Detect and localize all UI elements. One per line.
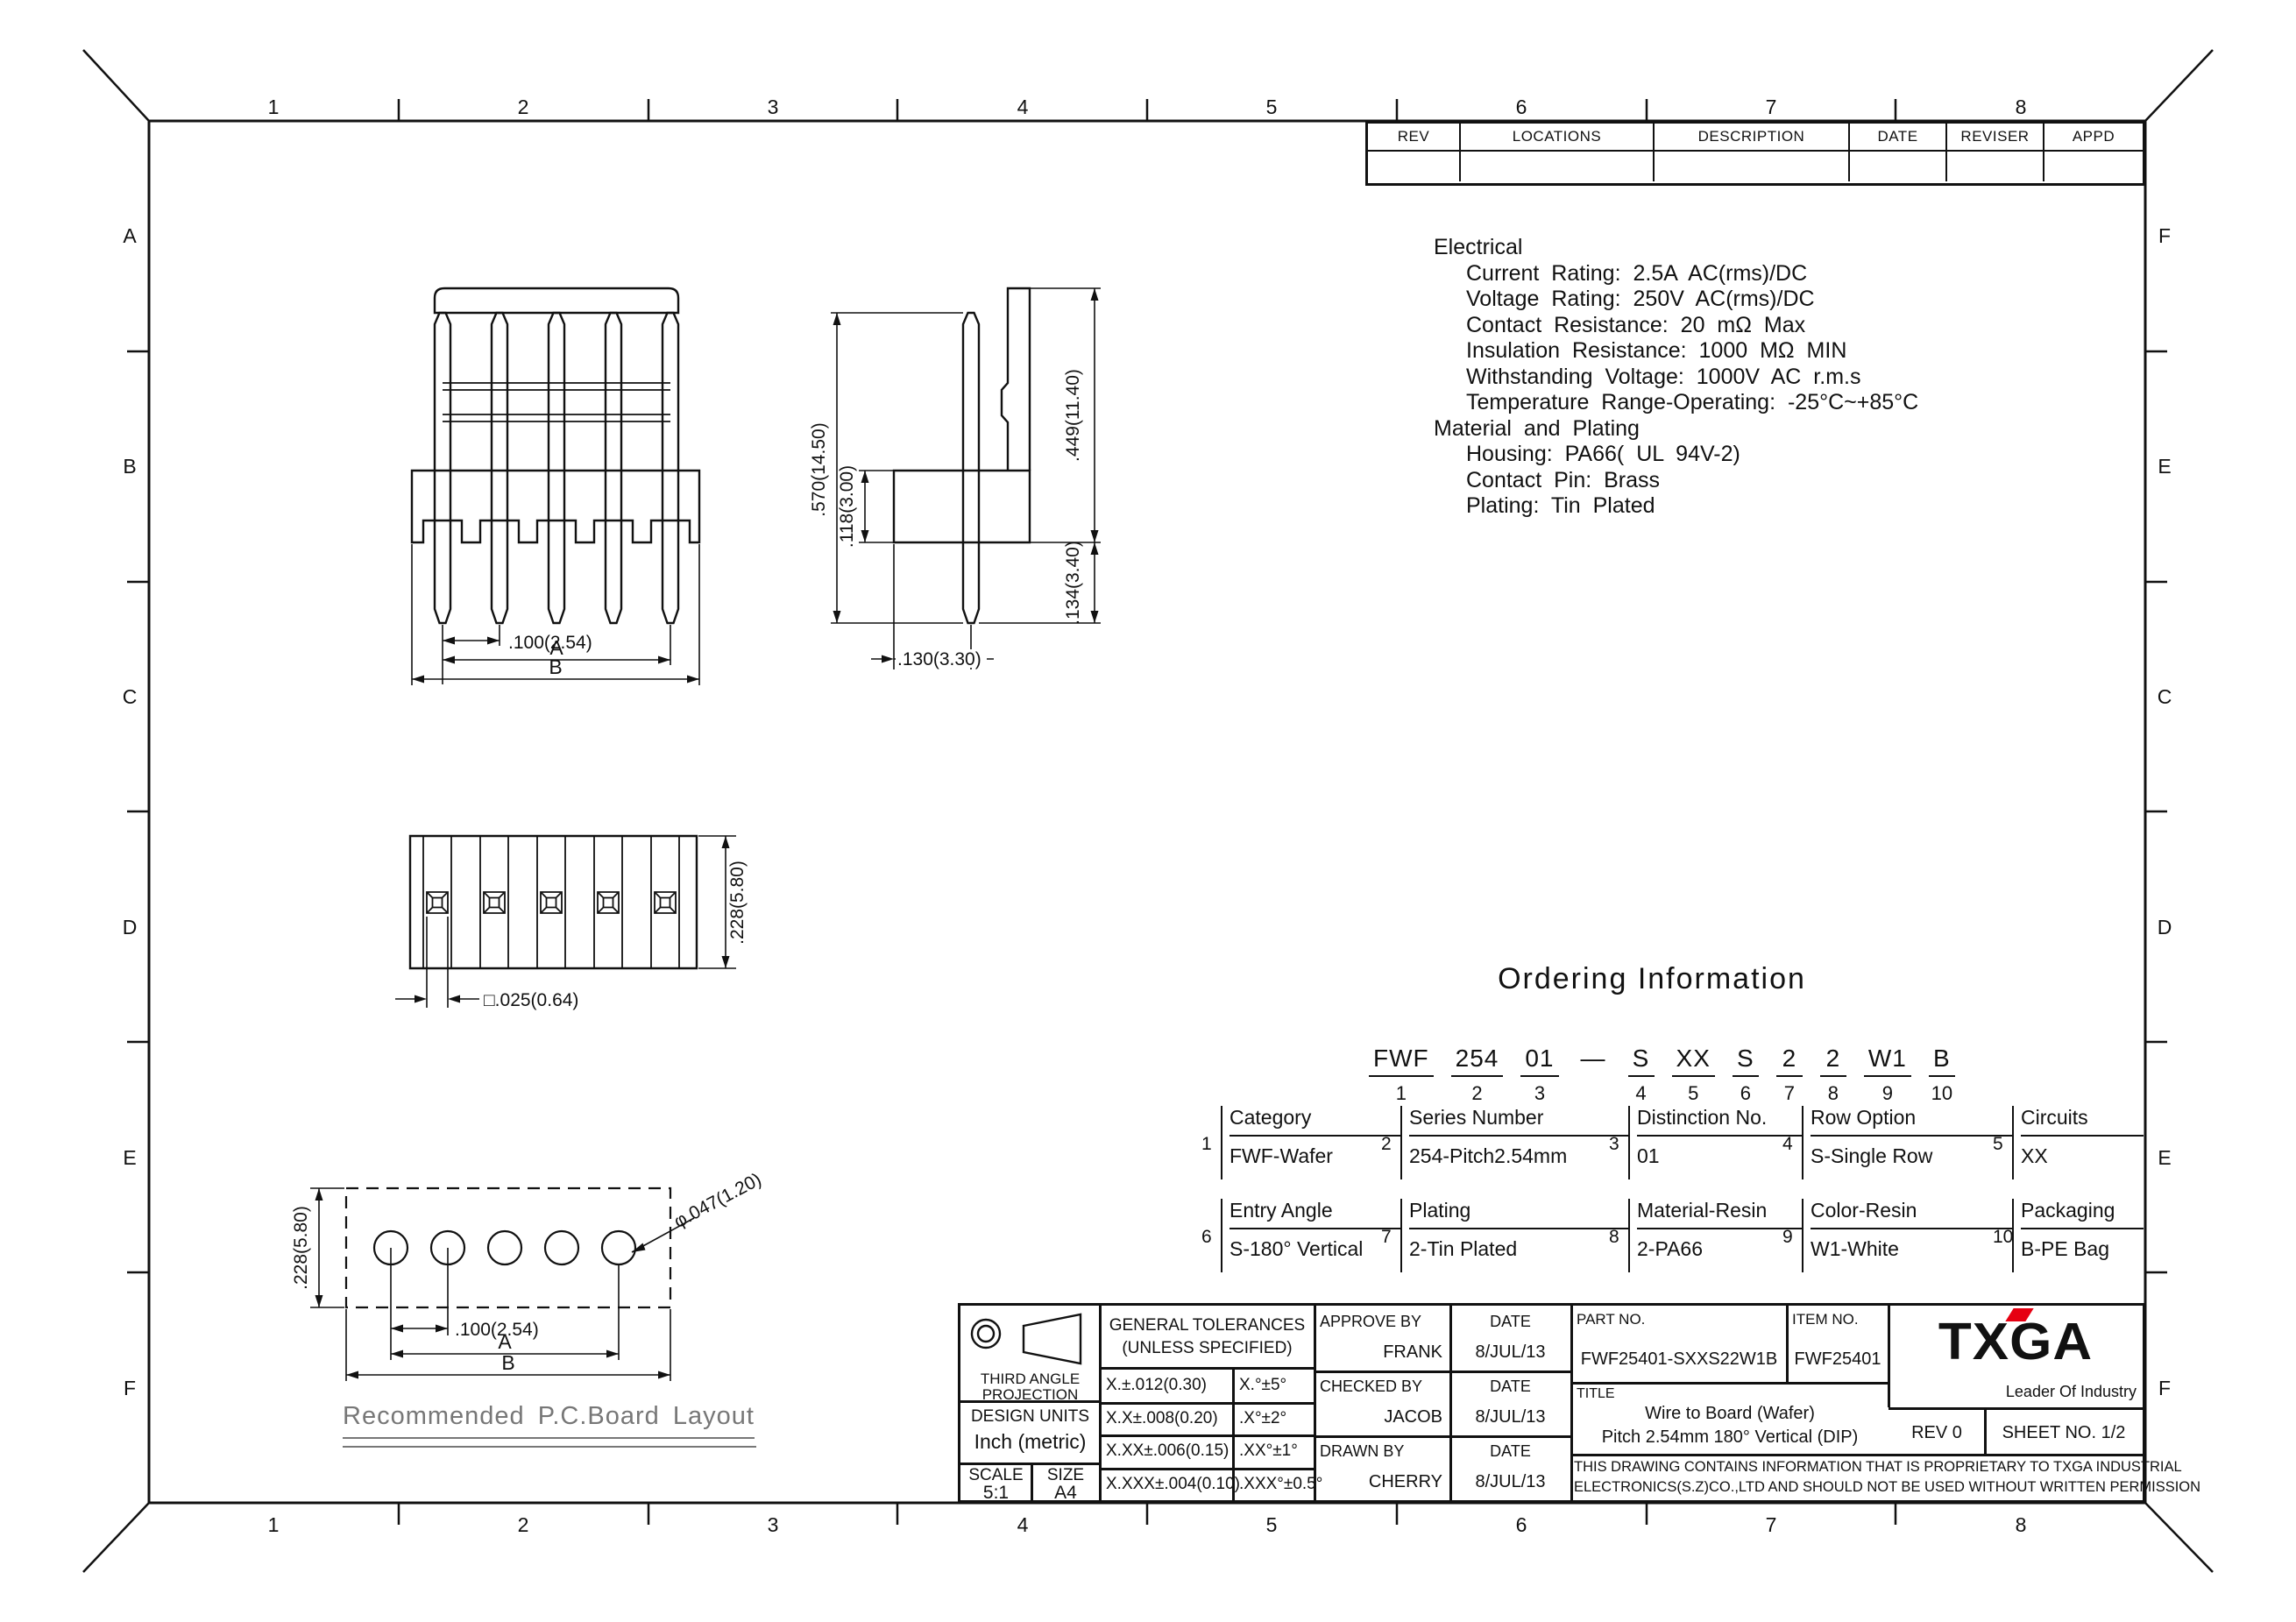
segment-code: 01	[1520, 1045, 1558, 1077]
zone-col-label: 3	[768, 96, 779, 118]
dim-label-lower: .134(3.40)	[1063, 541, 1083, 625]
part-number-segment: —	[1577, 1045, 1611, 1105]
approve-by-name: FRANK	[1337, 1342, 1442, 1363]
segment-code: W1	[1864, 1045, 1911, 1077]
zone-row-label: C	[123, 685, 138, 708]
segment-code: —	[1577, 1045, 1611, 1077]
spec-section-title: Material and Plating	[1434, 416, 2100, 443]
approve-by-label: APPROVE BY	[1320, 1313, 1421, 1331]
checked-by-name: JACOB	[1337, 1407, 1442, 1427]
ordering-field-material: 8 Material-Resin 2-PA66	[1628, 1199, 1802, 1272]
ordering-field-distinction: 3 Distinction No. 01	[1628, 1106, 1802, 1179]
field-value: W1-White	[1811, 1229, 2012, 1261]
spec-line: Plating: Tin Plated	[1434, 493, 2100, 520]
item-no-label: ITEM NO.	[1792, 1311, 1859, 1328]
proprietary-note: ELECTRONICS(S.Z)CO.,LTD AND SHOULD NOT B…	[1574, 1479, 2143, 1496]
zone-row-label: D	[2158, 916, 2172, 938]
zone-col-label: 8	[2016, 96, 2027, 118]
zone-col-label: 8	[2016, 1513, 2027, 1536]
field-value: 2-PA66	[1637, 1229, 1802, 1261]
zone-col-label: 5	[1266, 1513, 1278, 1536]
tolerance-angle: .XXX°±0.5°	[1239, 1475, 1322, 1494]
revision-col-header: DATE	[1850, 124, 1947, 152]
spec-text-block: Electrical Current Rating: 2.5A AC(rms)/…	[1434, 235, 2100, 520]
extension-lines	[831, 288, 1101, 669]
ordering-field-color: 9 Color-Resin W1-White	[1802, 1199, 2012, 1272]
ordering-field-entry-angle: 6 Entry Angle S-180° Vertical	[1221, 1199, 1400, 1272]
segment-code: FWF	[1369, 1045, 1434, 1077]
zone-col-label: 6	[1516, 96, 1527, 118]
dimension-arrows	[415, 836, 730, 1003]
tolerances-title: (UNLESS SPECIFIED)	[1100, 1339, 1315, 1358]
revision-col-header: REVISER	[1947, 124, 2044, 152]
segment-code: B	[1929, 1045, 1955, 1077]
sheet-no-value: SHEET NO. 1/2	[1985, 1423, 2143, 1443]
connector-cap	[435, 288, 678, 313]
segment-code: XX	[1672, 1045, 1715, 1077]
dimension-lines	[837, 288, 1095, 659]
field-number: 4	[1782, 1134, 1793, 1155]
revision-cell-empty	[1655, 152, 1850, 181]
segment-code: 2	[1776, 1045, 1803, 1077]
drawing-sheet: { "border": { "cols": ["1","2","3","4","…	[0, 0, 2296, 1622]
segment-code: 2	[1820, 1045, 1846, 1077]
front-view: .100(2.54) A B	[412, 288, 699, 685]
zone-col-label: 2	[518, 96, 529, 118]
rev-value: REV 0	[1889, 1423, 1985, 1443]
dim-label-offset: .130(3.30)	[897, 649, 981, 669]
spec-line: Withstanding Voltage: 1000V AC r.m.s	[1434, 365, 2100, 391]
part-number-segment: 2542	[1451, 1045, 1504, 1105]
date-label: DATE	[1450, 1313, 1570, 1331]
dim-label-height: .570(14.50)	[809, 422, 829, 516]
spec-line: Housing: PA66( UL 94V-2)	[1434, 442, 2100, 468]
segment-number: 4	[1635, 1082, 1646, 1105]
item-no-value: FWF25401	[1787, 1349, 1889, 1370]
projection-label: PROJECTION	[960, 1386, 1100, 1404]
tolerance-angle: .X°±2°	[1239, 1409, 1286, 1428]
field-label: Plating	[1409, 1199, 1628, 1229]
segment-code: 254	[1451, 1045, 1504, 1077]
revision-col-header: DESCRIPTION	[1655, 124, 1850, 152]
size-value: A4	[1031, 1483, 1100, 1504]
zone-col-label: 4	[1017, 1513, 1029, 1536]
housing-body	[412, 471, 699, 542]
zone-row-label: D	[123, 916, 138, 938]
field-value: FWF-Wafer	[1229, 1137, 1400, 1168]
zone-row-label: B	[123, 455, 136, 478]
zone-col-label: 4	[1017, 96, 1029, 118]
part-number-segment: XX5	[1672, 1045, 1715, 1105]
revision-cell-empty	[1947, 152, 2044, 181]
proprietary-note: THIS DRAWING CONTAINS INFORMATION THAT I…	[1574, 1459, 2143, 1476]
part-number-segment: S6	[1733, 1045, 1759, 1105]
tolerance-linear: X.XX±.006(0.15)	[1106, 1441, 1229, 1461]
zone-row-label: C	[2158, 685, 2172, 708]
dimension-lines	[395, 836, 726, 999]
segment-code: S	[1628, 1045, 1655, 1077]
zone-col-label: 2	[518, 1513, 529, 1536]
drawing-title-line2: Pitch 2.54mm 180° Vertical (DIP)	[1571, 1427, 1889, 1448]
zone-row-label: F	[2158, 224, 2171, 247]
field-label: Packaging	[2021, 1199, 2144, 1229]
zone-row-label: A	[123, 224, 137, 247]
field-number: 2	[1381, 1134, 1392, 1155]
dim-label-hole: φ.047(1.20)	[670, 1169, 764, 1232]
slot-lines	[423, 836, 679, 968]
tolerance-linear: X.XXX±.004(0.10)	[1106, 1475, 1240, 1494]
ordering-field-series: 2 Series Number 254-Pitch2.54mm	[1400, 1106, 1628, 1179]
field-label: Circuits	[2021, 1106, 2144, 1137]
zone-col-label: 7	[1766, 1513, 1777, 1536]
field-label: Series Number	[1409, 1106, 1628, 1137]
segment-number: 9	[1882, 1082, 1893, 1105]
part-no-value: FWF25401-SXXS22W1B	[1571, 1349, 1787, 1370]
spec-line: Temperature Range-Operating: -25°C~+85°C	[1434, 390, 2100, 416]
caption-underline	[343, 1446, 756, 1448]
pin	[492, 313, 507, 623]
zone-row-label: F	[2158, 1377, 2171, 1399]
drawing-title-line1: Wire to Board (Wafer)	[1571, 1404, 1889, 1424]
title-block: THIRD ANGLE PROJECTION DESIGN UNITS Inch…	[958, 1303, 2145, 1503]
field-number: 1	[1201, 1134, 1212, 1155]
field-number: 3	[1609, 1134, 1619, 1155]
zone-col-label: 7	[1766, 96, 1777, 118]
ordering-field-row-option: 4 Row Option S-Single Row	[1802, 1106, 2012, 1179]
segment-number: 10	[1931, 1082, 1952, 1105]
pin	[663, 313, 678, 623]
side-view: .570(14.50) .118(3.00) .449(11.40) .134(…	[809, 288, 1101, 669]
drawn-date: 8/JUL/13	[1450, 1472, 1570, 1492]
ordering-field-circuits: 5 Circuits XX	[2012, 1106, 2144, 1179]
segment-code: S	[1733, 1045, 1759, 1077]
latch-profile	[1002, 288, 1030, 471]
dim-label-b: B	[549, 655, 562, 678]
dim-label-upper: .449(11.40)	[1063, 369, 1083, 462]
checked-by-label: CHECKED BY	[1320, 1378, 1422, 1396]
zone-row-label: E	[123, 1146, 136, 1169]
dimension-arrows	[833, 288, 1099, 663]
field-label: Distinction No.	[1637, 1106, 1802, 1137]
design-units-value: Inch (metric)	[960, 1430, 1100, 1454]
approve-date: 8/JUL/13	[1450, 1342, 1570, 1363]
revision-cell-empty	[1850, 152, 1947, 181]
field-label: Color-Resin	[1811, 1199, 2012, 1229]
ordering-title: Ordering Information	[1363, 962, 1941, 996]
field-label: Category	[1229, 1106, 1400, 1137]
field-number: 10	[1993, 1227, 2013, 1248]
segment-number: 8	[1828, 1082, 1839, 1105]
pcb-layout-view: .228(5.80) φ.047(1.20) .100(2.54) A B	[291, 1169, 765, 1381]
extension-lines	[427, 836, 736, 1008]
ordering-field-plating: 7 Plating 2-Tin Plated	[1400, 1199, 1628, 1272]
tolerance-linear: X.X±.008(0.20)	[1106, 1409, 1218, 1428]
part-number-segment: 28	[1820, 1045, 1846, 1105]
title-label: TITLE	[1577, 1386, 1615, 1402]
field-value: 2-Tin Plated	[1409, 1229, 1628, 1261]
tolerances-title: GENERAL TOLERANCES	[1100, 1316, 1315, 1335]
field-number: 7	[1381, 1227, 1392, 1248]
dim-label-pitch: .100(2.54)	[455, 1320, 539, 1340]
field-number: 8	[1609, 1227, 1619, 1248]
field-value: S-Single Row	[1811, 1137, 2012, 1168]
zone-col-label: 1	[268, 1513, 280, 1536]
segment-number: 7	[1784, 1082, 1795, 1105]
housing-side	[894, 471, 1030, 542]
revision-cell-empty	[2044, 152, 2143, 181]
drawn-by-name: CHERRY	[1337, 1472, 1442, 1492]
drawn-by-label: DRAWN BY	[1320, 1442, 1404, 1461]
extension-lines	[310, 1188, 670, 1381]
wafer-outline	[410, 836, 697, 968]
pin	[606, 313, 621, 623]
revision-col-header: REV	[1368, 124, 1461, 152]
ordering-field-category: 1 Category FWF-Wafer	[1221, 1106, 1400, 1179]
field-label: Entry Angle	[1229, 1199, 1400, 1229]
part-number-segment: 013	[1520, 1045, 1558, 1105]
design-units-label: DESIGN UNITS	[960, 1407, 1100, 1427]
field-value: 01	[1637, 1137, 1802, 1168]
zone-col-label: 5	[1266, 96, 1278, 118]
zone-row-label: F	[124, 1377, 136, 1399]
field-value: XX	[2021, 1137, 2144, 1168]
segment-number: 1	[1396, 1082, 1407, 1105]
segment-number: 3	[1534, 1082, 1545, 1105]
dim-label-a: A	[498, 1330, 512, 1353]
field-value: 254-Pitch2.54mm	[1409, 1137, 1628, 1168]
field-label: Material-Resin	[1637, 1199, 1802, 1229]
part-number-segment: FWF1	[1369, 1045, 1434, 1105]
scale-value: 5:1	[960, 1483, 1031, 1504]
dim-label-b: B	[501, 1351, 514, 1374]
zone-col-label: 3	[768, 1513, 779, 1536]
spec-line: Voltage Rating: 250V AC(rms)/DC	[1434, 287, 2100, 313]
field-value: B-PE Bag	[2021, 1229, 2144, 1261]
spec-line: Current Rating: 2.5A AC(rms)/DC	[1434, 261, 2100, 287]
bottom-view: .228(5.80) □.025(0.64)	[395, 836, 748, 1010]
date-label: DATE	[1450, 1378, 1570, 1396]
square-pins	[427, 892, 676, 913]
field-number: 6	[1201, 1227, 1212, 1248]
ordering-field-packaging: 10 Packaging B-PE Bag	[2012, 1199, 2144, 1272]
tolerance-angle: .XX°±1°	[1239, 1441, 1298, 1461]
pin	[549, 313, 564, 623]
part-number-segment: B10	[1929, 1045, 1955, 1105]
segment-number: 6	[1740, 1082, 1751, 1105]
drill-holes	[374, 1231, 635, 1264]
field-number: 5	[1993, 1134, 2003, 1155]
zone-col-label: 6	[1516, 1513, 1527, 1536]
dimension-arrows	[315, 1188, 671, 1379]
zone-row-label: E	[2158, 455, 2171, 478]
checked-date: 8/JUL/13	[1450, 1407, 1570, 1427]
part-no-label: PART NO.	[1577, 1311, 1645, 1328]
date-label: DATE	[1450, 1442, 1570, 1461]
revision-cell-empty	[1461, 152, 1655, 181]
field-value: S-180° Vertical	[1229, 1229, 1400, 1261]
revision-col-header: APPD	[2044, 124, 2143, 152]
segment-number: 2	[1471, 1082, 1482, 1105]
part-number-breakdown: FWF1 2542 013 — S4 XX5 S6 27 28 W19 B10	[1369, 1045, 1955, 1105]
dim-label-body: .118(3.00)	[837, 465, 857, 548]
dim-label-pin: □.025(0.64)	[484, 990, 578, 1010]
revision-cell-empty	[1368, 152, 1461, 181]
tolerance-linear: X.±.012(0.30)	[1106, 1376, 1207, 1395]
part-number-segment: S4	[1628, 1045, 1655, 1105]
field-number: 9	[1782, 1227, 1793, 1248]
revision-table: REV LOCATIONS DESCRIPTION DATE REVISER A…	[1365, 121, 2145, 186]
dim-label-width: .228(5.80)	[291, 1206, 311, 1290]
dim-label-width: .228(5.80)	[727, 861, 748, 945]
spec-line: Insulation Resistance: 1000 MΩ MIN	[1434, 338, 2100, 365]
tolerance-angle: X.°±5°	[1239, 1376, 1286, 1395]
board-outline	[346, 1188, 670, 1307]
pcb-layout-caption: Recommended P.C.Board Layout	[343, 1402, 755, 1439]
part-number-segment: 27	[1776, 1045, 1803, 1105]
spec-line: Contact Pin: Brass	[1434, 468, 2100, 494]
segment-number: 5	[1688, 1082, 1698, 1105]
logo-tagline: Leader Of Industry	[1889, 1383, 2137, 1401]
zone-row-label: E	[2158, 1146, 2171, 1169]
zone-col-label: 1	[268, 96, 280, 118]
projection-label: THIRD ANGLE	[960, 1371, 1100, 1388]
revision-col-header: LOCATIONS	[1461, 124, 1655, 152]
part-number-segment: W19	[1864, 1045, 1911, 1105]
pin	[435, 313, 450, 623]
spec-line: Contact Resistance: 20 mΩ Max	[1434, 313, 2100, 339]
connector-crossbars	[443, 383, 670, 421]
field-label: Row Option	[1811, 1106, 2012, 1137]
pin-side	[963, 313, 979, 623]
spec-section-title: Electrical	[1434, 235, 2100, 261]
